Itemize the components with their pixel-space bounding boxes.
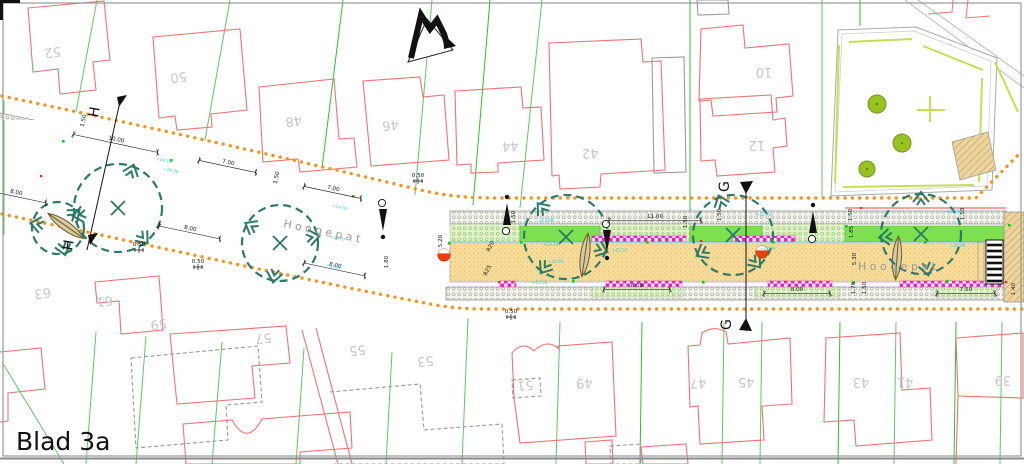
green-marker-square xyxy=(520,241,523,244)
lamppost-head xyxy=(808,235,815,242)
green-marker-square xyxy=(924,241,927,244)
dimension-label: 5.20 xyxy=(438,234,444,247)
red-marker-square xyxy=(1005,281,1007,283)
house-number: 53 xyxy=(416,352,434,369)
dimension-label: 1.50 xyxy=(717,208,723,221)
section-letter-g-top: G xyxy=(717,181,733,192)
elevation-label: +22.90 xyxy=(760,246,776,251)
red-marker-square xyxy=(498,281,500,283)
parking-strip-south xyxy=(500,281,516,287)
lamppost-head xyxy=(502,227,509,234)
house-number: 48 xyxy=(284,112,302,129)
section-letter-g-bottom: G xyxy=(719,319,735,330)
green-marker-square xyxy=(1008,224,1011,227)
green-marker-square xyxy=(702,281,705,284)
house-number: 52 xyxy=(43,43,61,60)
dimension-label: 1.50 xyxy=(862,281,868,294)
dimension-label: 1.76 xyxy=(851,281,857,294)
speed-bump-icon xyxy=(438,249,450,261)
house-number: 43 xyxy=(853,374,870,389)
red-marker-square xyxy=(860,207,862,209)
lamppost-dot xyxy=(605,256,609,260)
green-marker-square xyxy=(646,241,649,244)
house-number: 42 xyxy=(582,145,599,161)
sheet-title: Blad 3a xyxy=(16,427,110,456)
elevation-label: +23.02 xyxy=(532,280,548,285)
house-number: 55 xyxy=(348,341,366,358)
dimension-label: 8.00 xyxy=(631,283,644,289)
house-number: 10 xyxy=(756,64,773,79)
dimension-label: 1.50 xyxy=(848,208,854,221)
elevation-label: +22.94 xyxy=(756,212,772,217)
lamppost-dot xyxy=(381,235,385,239)
green-marker-square xyxy=(448,242,451,245)
street-plan-canvas: 1.5010.007.007.008.001.508.008.000.500.5… xyxy=(0,0,1024,464)
house-number: 59 xyxy=(149,315,167,332)
parking-strip-north xyxy=(733,236,795,242)
house-number: 57 xyxy=(254,329,272,346)
house-number: 12 xyxy=(749,137,766,152)
elevation-label: +23.88 xyxy=(538,218,554,223)
dimension-label: 8.00 xyxy=(791,287,804,293)
elevation-label: +20.98 xyxy=(947,209,963,214)
green-marker-square xyxy=(946,280,949,283)
house-number: 61 xyxy=(95,292,113,309)
sidewalk-north xyxy=(450,211,1006,224)
house-number: 46 xyxy=(381,116,399,133)
dimension-label: 1.40 xyxy=(1011,282,1017,295)
house-number: 63 xyxy=(33,284,51,301)
house-number: 39 xyxy=(995,372,1012,387)
dimension-label: 7.50 xyxy=(960,287,973,293)
elevation-label: +23.06 xyxy=(548,259,564,264)
lamppost-head xyxy=(378,199,385,206)
green-marker-square xyxy=(572,280,575,283)
dimension-label: 1.80 xyxy=(384,255,390,268)
house-number: 41 xyxy=(897,374,914,389)
dimension-label: 11.00 xyxy=(647,214,663,220)
lamppost-dot xyxy=(505,195,509,199)
street-name-label: Hoogepat xyxy=(858,260,940,273)
sidewalk-south xyxy=(446,287,1006,300)
parking-strip-south xyxy=(606,281,682,287)
dimension-label: 1.50 xyxy=(683,215,689,228)
house-number: 44 xyxy=(501,137,519,153)
elevation-label: +20.89 xyxy=(950,243,966,248)
elevation-label: +23.10 xyxy=(543,242,559,247)
house-number: 51 xyxy=(516,376,534,392)
red-marker-square xyxy=(700,240,702,242)
elevation-label: +22.97 xyxy=(612,248,628,253)
house-number: 50 xyxy=(169,68,187,85)
lamppost-dot xyxy=(811,203,815,207)
red-marker-square xyxy=(40,175,42,177)
house-number: 49 xyxy=(575,374,593,390)
dimension-label: 1.50 xyxy=(511,210,517,223)
house-number: 45 xyxy=(738,374,755,390)
dimension-label: 1.85 xyxy=(849,225,855,238)
green-marker-square xyxy=(845,225,848,228)
drawing-sheet: 1.5010.007.007.008.001.508.008.000.500.5… xyxy=(0,0,1024,464)
green-marker-square xyxy=(772,241,775,244)
house-number: 47 xyxy=(690,375,707,391)
green-marker-square xyxy=(62,140,65,143)
